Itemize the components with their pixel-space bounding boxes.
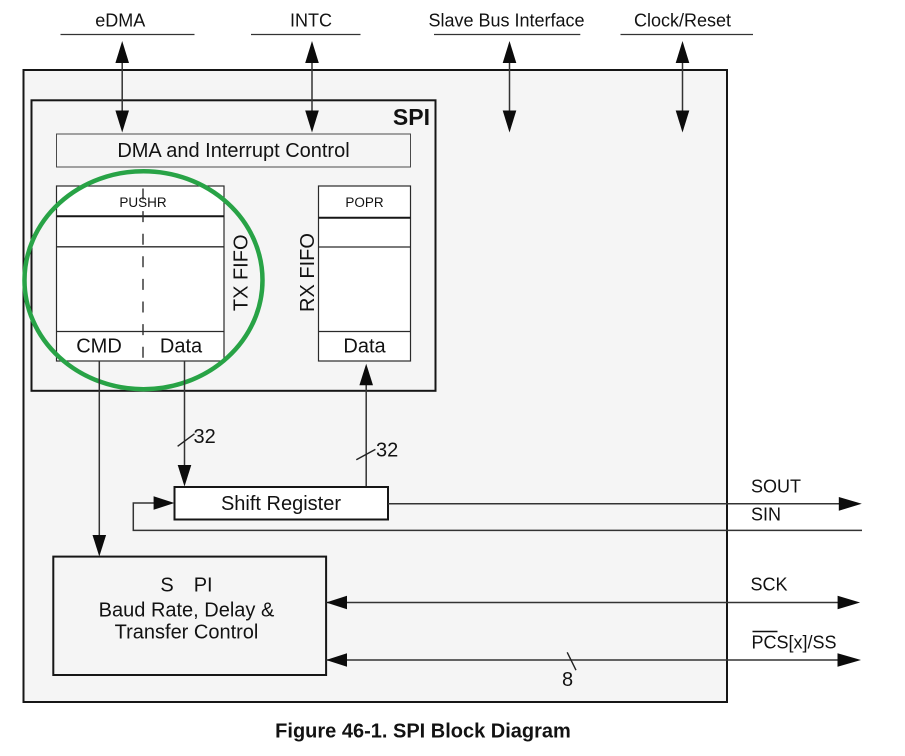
- svg-text:POPR: POPR: [345, 195, 384, 210]
- svg-text:INTC: INTC: [290, 11, 332, 31]
- svg-text:PCS[x]/SS: PCS[x]/SS: [752, 633, 837, 653]
- svg-text:Transfer Control: Transfer Control: [115, 622, 259, 644]
- svg-text:Clock/Reset: Clock/Reset: [634, 11, 731, 31]
- svg-text:Figure 46-1. SPI Block Diagram: Figure 46-1. SPI Block Diagram: [275, 721, 571, 743]
- svg-text:SIN: SIN: [751, 505, 781, 525]
- svg-text:Data: Data: [343, 336, 386, 358]
- svg-text:RX FIFO: RX FIFO: [297, 233, 319, 312]
- svg-text:Baud Rate, Delay &: Baud Rate, Delay &: [99, 599, 275, 621]
- svg-text:32: 32: [376, 440, 398, 462]
- svg-text:SCK: SCK: [751, 575, 788, 595]
- svg-text:TX FIFO: TX FIFO: [231, 234, 253, 311]
- svg-text:eDMA: eDMA: [95, 11, 145, 31]
- svg-text:DMA and Interrupt Control: DMA and Interrupt Control: [117, 140, 349, 162]
- svg-text:32: 32: [194, 426, 216, 448]
- svg-text:8: 8: [562, 669, 573, 691]
- svg-text:Slave Bus Interface: Slave Bus Interface: [428, 11, 584, 31]
- svg-text:S PI: S PI: [160, 574, 212, 596]
- svg-text:PUSHR: PUSHR: [119, 195, 167, 210]
- svg-text:Shift Register: Shift Register: [221, 493, 341, 515]
- svg-text:Data: Data: [160, 336, 203, 358]
- svg-text:CMD: CMD: [76, 336, 122, 358]
- svg-text:SOUT: SOUT: [751, 477, 801, 497]
- svg-text:SPI: SPI: [393, 104, 430, 130]
